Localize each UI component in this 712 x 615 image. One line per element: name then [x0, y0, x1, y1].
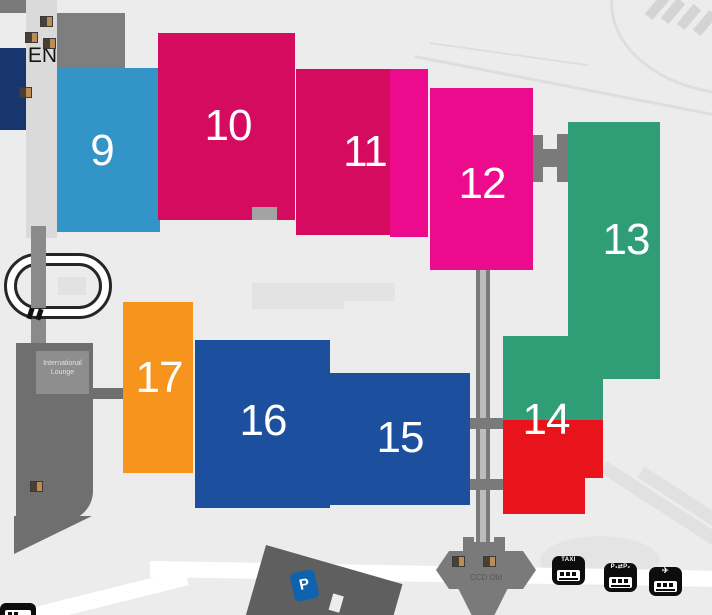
international-lounge-label: International Lounge: [36, 351, 89, 394]
restaurant-icon[interactable]: [19, 87, 32, 98]
building-wedge: [14, 516, 92, 554]
road-block: [0, 0, 27, 13]
hall-10-label: 10: [205, 101, 252, 151]
ccd-building-tail: [457, 586, 509, 615]
taxi-icon[interactable]: TAXI: [552, 556, 585, 585]
hall-11-strip[interactable]: [390, 69, 428, 237]
restaurant-icon[interactable]: [452, 556, 465, 567]
bus-glyph: [609, 577, 632, 588]
taxi-sign: TAXI: [552, 556, 585, 564]
restaurant-icon[interactable]: [30, 481, 43, 492]
shuttle-bus-icon[interactable]: P₁⇄P₂: [604, 563, 637, 592]
shuttle-sign: P₁⇄P₂: [604, 563, 637, 571]
ccd-label: CCD Old: [436, 573, 536, 582]
restaurant-icon[interactable]: [25, 32, 38, 43]
skywalk-corridor: [476, 270, 490, 554]
hall-15-label: 15: [377, 413, 424, 463]
bus-glyph: [654, 581, 677, 592]
hall-9-label: 9: [90, 126, 113, 176]
hall-14-red[interactable]: [503, 476, 585, 514]
parking-letter: P: [298, 575, 311, 594]
international-lounge-arm: [90, 388, 126, 399]
transport-icon-partial[interactable]: [0, 603, 36, 615]
restaurant-icon[interactable]: [43, 38, 56, 49]
hall-11-label: 11: [343, 127, 387, 177]
corridor-link: [464, 418, 508, 429]
venue-map: EN International Lounge 9 10 11 12 13 14…: [0, 0, 712, 615]
background-building: [344, 301, 396, 311]
building-notch: [329, 593, 344, 612]
loop-inner-building: [58, 277, 86, 295]
hall-10-annex: [252, 207, 277, 220]
bus-glyph: [5, 610, 31, 615]
hall-17-label: 17: [136, 353, 183, 403]
restaurant-icon[interactable]: [483, 556, 496, 567]
plane-glyph: ✈: [649, 567, 682, 575]
hall-14-label: 14: [523, 395, 570, 445]
taxi-glyph: [557, 570, 580, 581]
hall-16-label: 16: [240, 396, 287, 446]
restaurant-icon[interactable]: [40, 16, 53, 27]
north-building: [57, 13, 125, 68]
hall-13-label: 13: [603, 215, 650, 265]
hall-12-label: 12: [459, 159, 506, 209]
road-vertical: [31, 226, 46, 308]
corridor-link: [464, 479, 508, 490]
airport-bus-icon[interactable]: ✈: [649, 567, 682, 596]
parking-building: [242, 545, 403, 615]
